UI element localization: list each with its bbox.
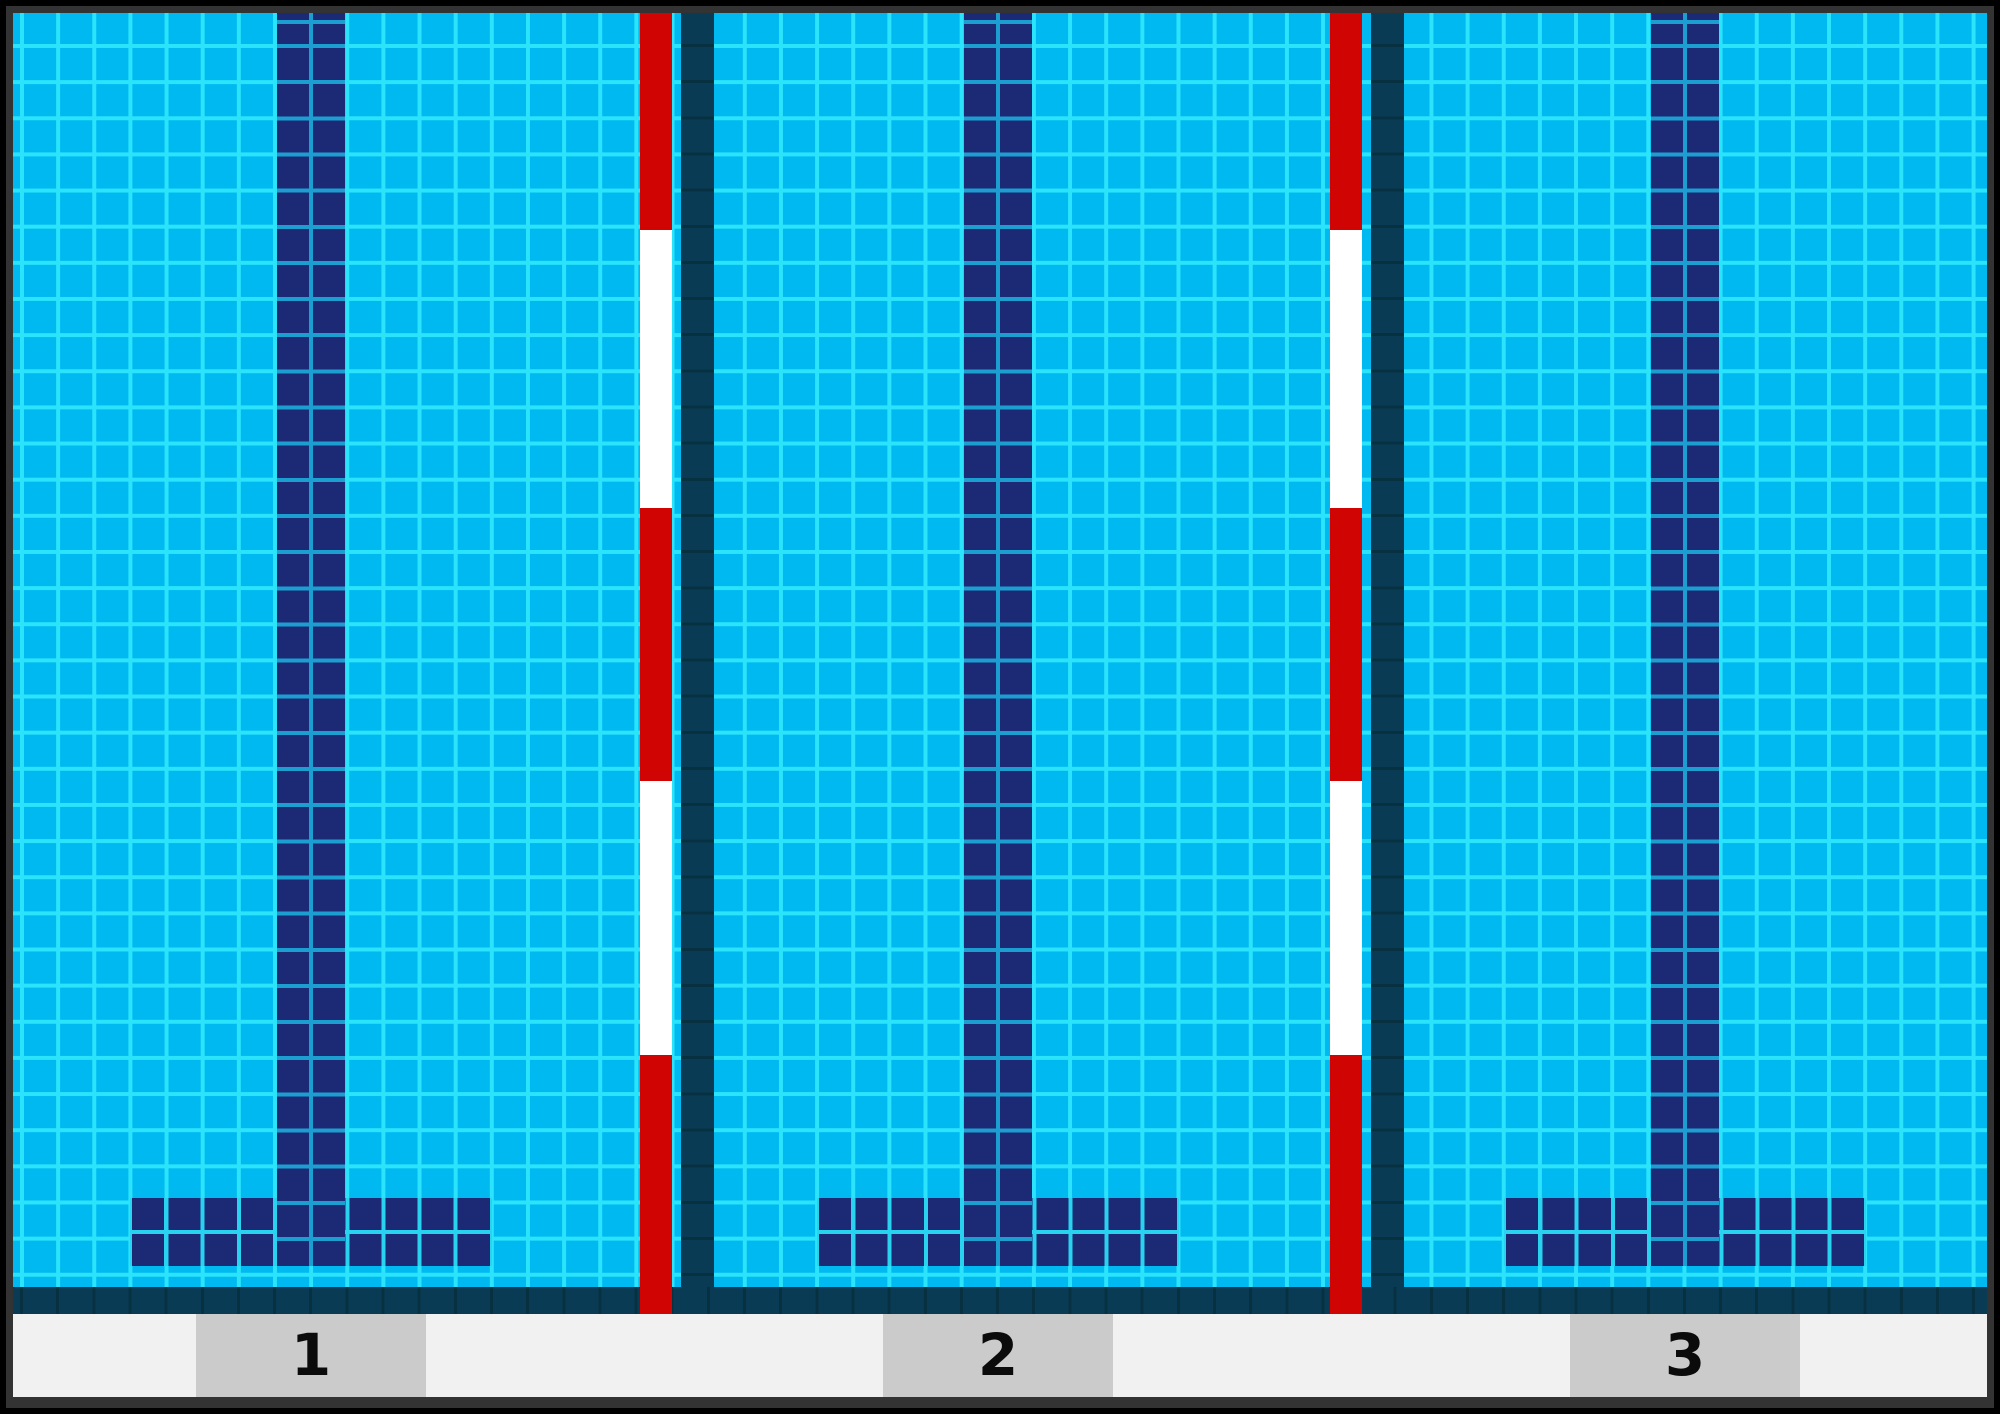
lane-center-line-1 [277,13,345,1266]
lane-number-plate-1: 1 [196,1314,426,1397]
lane-number-label: 3 [1570,1314,1800,1397]
pool-scene: 1 2 3 [13,13,1987,1397]
lane-divider-wall-1 [681,13,714,1314]
lane-number-label: 1 [196,1314,426,1397]
lane-number-label: 2 [883,1314,1113,1397]
image-frame: 1 2 3 [6,6,1994,1408]
lane-rope-2 [1330,13,1362,1314]
lane-center-line-2 [964,13,1032,1266]
pool-wall-edge [13,1287,1987,1314]
lane-number-plate-2: 2 [883,1314,1113,1397]
lane-center-line-3 [1651,13,1719,1266]
pool-deck: 1 2 3 [13,1314,1987,1397]
lane-divider-wall-2 [1371,13,1404,1314]
lane-rope-1 [640,13,672,1314]
lane-number-plate-3: 3 [1570,1314,1800,1397]
